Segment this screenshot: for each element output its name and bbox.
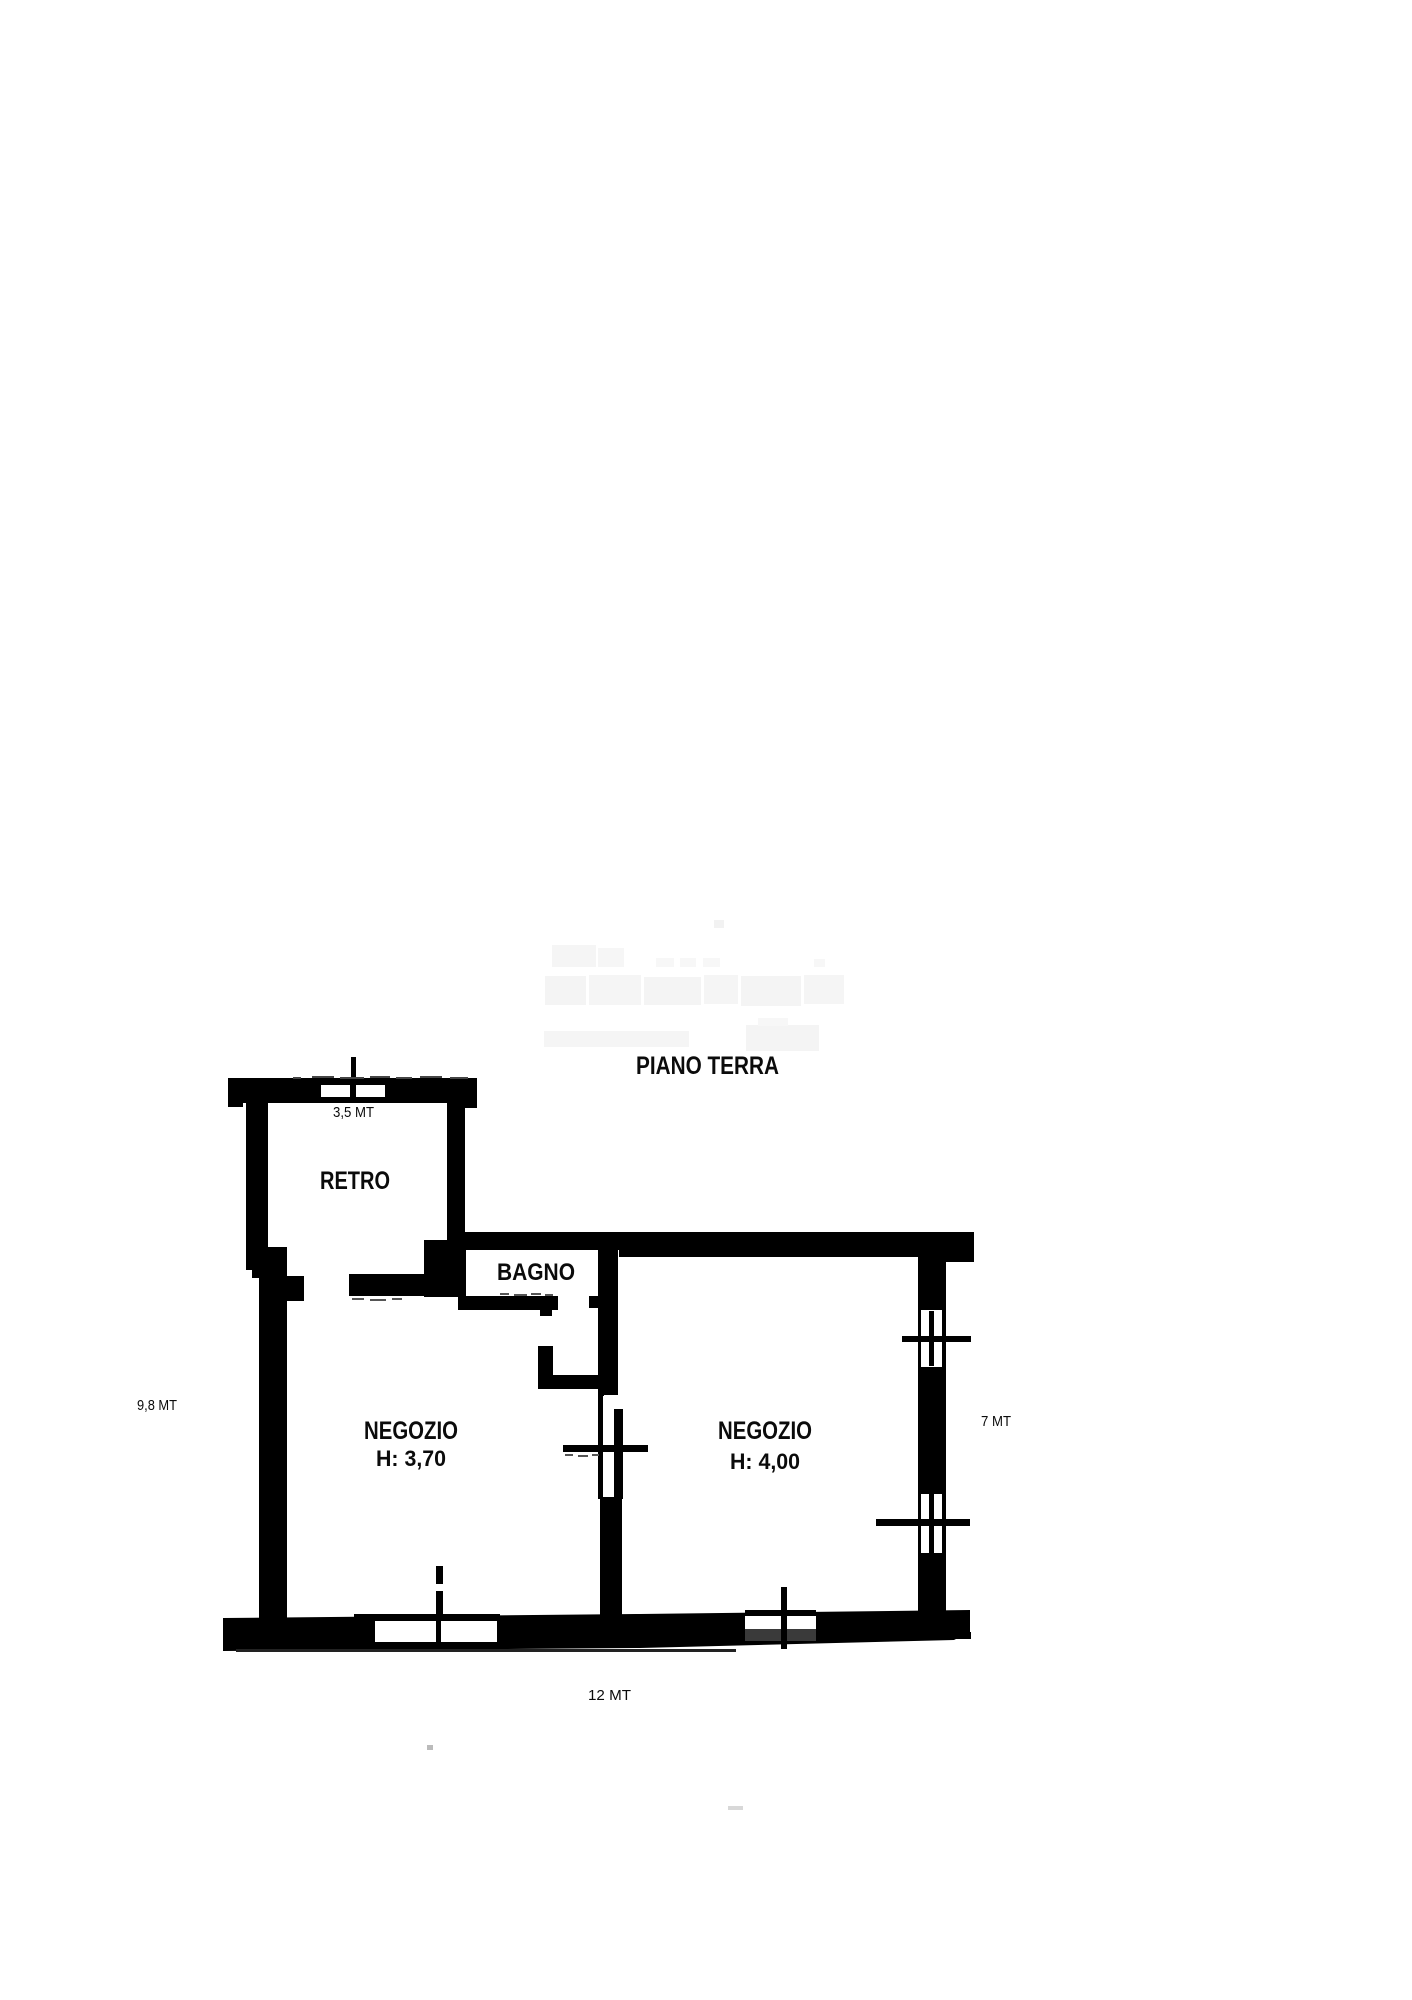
svg-text:9,8 MT: 9,8 MT xyxy=(137,1397,177,1414)
svg-text:NEGOZIO: NEGOZIO xyxy=(718,1417,812,1445)
svg-text:12 MT: 12 MT xyxy=(588,1687,631,1704)
svg-text:PIANO TERRA: PIANO TERRA xyxy=(636,1052,779,1080)
svg-text:BAGNO: BAGNO xyxy=(497,1259,575,1286)
svg-text:H: 4,00: H: 4,00 xyxy=(730,1449,800,1474)
svg-text:NEGOZIO: NEGOZIO xyxy=(364,1417,458,1445)
svg-text:RETRO: RETRO xyxy=(320,1167,390,1195)
svg-text:7 MT: 7 MT xyxy=(981,1413,1011,1430)
svg-text:3,5 MT: 3,5 MT xyxy=(333,1104,374,1121)
svg-text:H: 3,70: H: 3,70 xyxy=(376,1446,446,1471)
